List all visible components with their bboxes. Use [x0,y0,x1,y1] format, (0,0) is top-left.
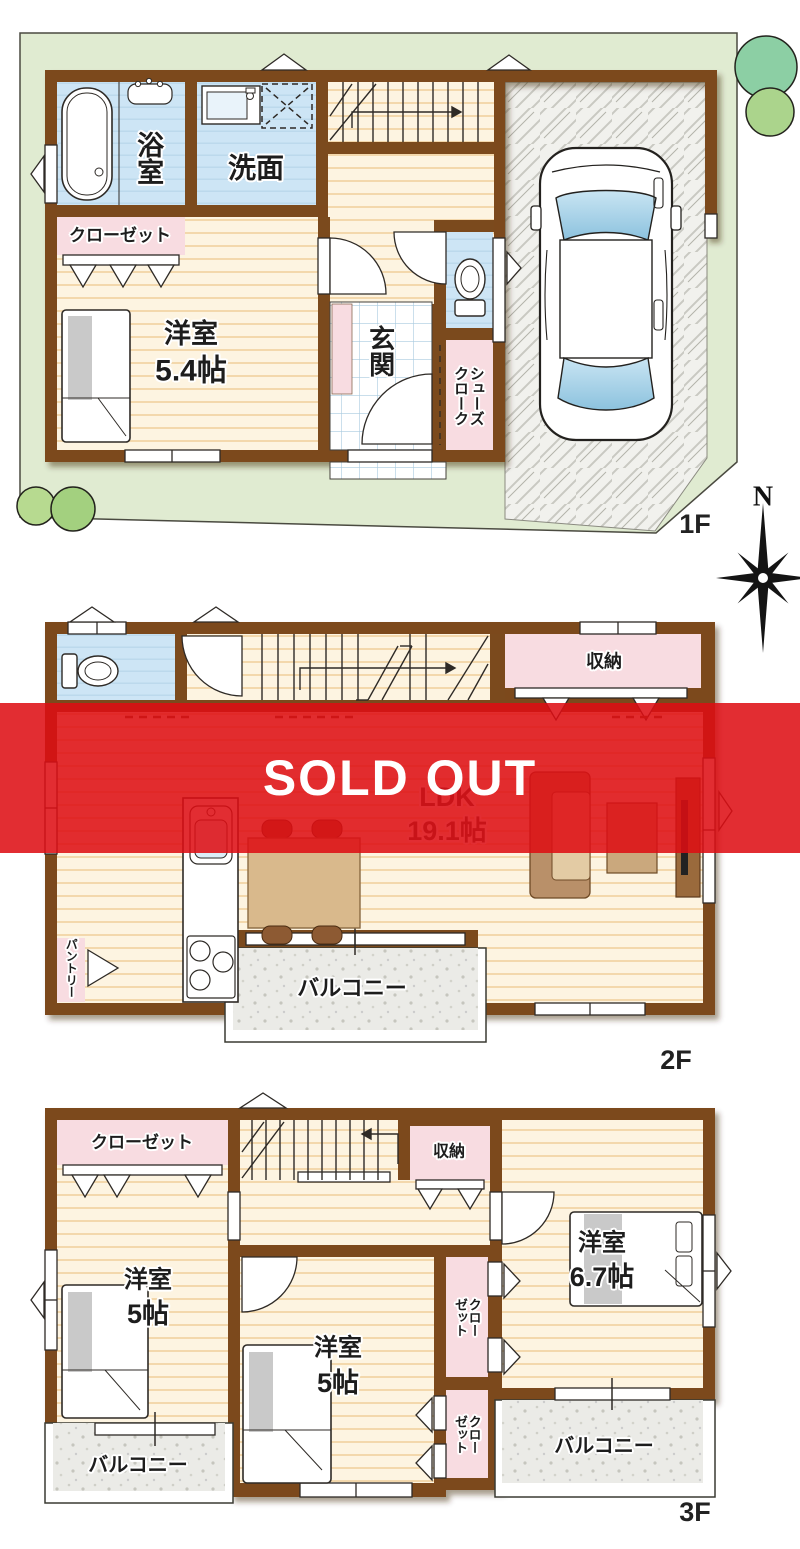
compass-icon [712,503,800,653]
room-label-storage-2f: 収納 [586,653,622,672]
toilet-icon-1f [455,259,485,316]
room-label-bedroom-3f-left-size: 5帖 [127,1300,169,1328]
room-label-balcony-3f-right: バルコニー [554,1437,654,1458]
toilet-icon-2f [62,654,118,688]
room-label-bedroom-3f-right-size: 6.7帖 [570,1263,635,1291]
bed-icon-3f-right [570,1212,702,1306]
room-label-closet-3f-mid: クローゼット [453,1294,480,1340]
room-label-bathroom: 浴室 [134,131,162,185]
sold-out-banner: SOLD OUT [0,703,800,853]
bed-icon-3f-mid [243,1345,331,1483]
room-label-closet-3f-top: クローゼット [91,1134,193,1152]
floor1-graphics [17,33,800,653]
room-label-storage-3f: 収納 [433,1145,465,1162]
washbasin-icon [202,86,260,124]
room-label-bedroom-3f-mid-size: 5帖 [317,1369,359,1397]
room-label-bedroom-3f-left-name: 洋室 [124,1267,172,1292]
room-label-shoes-cloak: シューズクローク [452,362,484,430]
room-label-bedroom-1f-name: 洋室 [164,320,218,348]
floor2-label: 2F [660,1046,692,1074]
room-label-entrance: 玄関 [366,325,393,377]
bed-icon-1f [62,310,130,442]
sold-out-text: SOLD OUT [263,749,537,807]
room-label-bedroom-3f-right-name: 洋室 [578,1230,626,1255]
car-icon [531,148,681,440]
room-label-balcony-2f: バルコニー [297,976,407,999]
room-label-bedroom-3f-mid-name: 洋室 [314,1335,362,1360]
room-label-closet-3f-low: クローゼット [453,1411,480,1457]
floor3-label: 3F [679,1498,711,1526]
room-label-balcony-3f-left: バルコニー [88,1456,188,1477]
room-label-washroom: 洗面 [228,153,284,182]
floor1-label: 1F [679,510,711,538]
compass-north-label: N [753,482,773,511]
room-label-pantry: パントリー [65,938,78,998]
room-label-closet-1f: クローゼット [69,227,171,245]
room-label-bedroom-1f-size: 5.4帖 [155,355,227,387]
floor-plan-page: 浴室 洗面 クローゼット 洋室 5.4帖 玄関 シューズクローク 1F N 収納… [0,0,800,1549]
